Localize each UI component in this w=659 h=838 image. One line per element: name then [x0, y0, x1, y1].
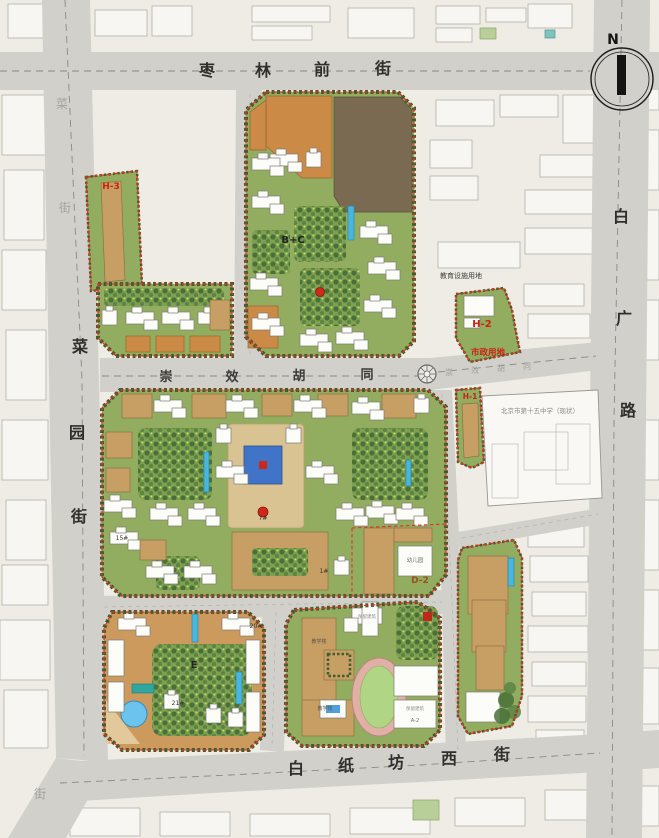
street-middle-faint-char: 同: [523, 362, 531, 371]
water-feature: [406, 460, 411, 486]
label-building-15: 15#: [116, 535, 129, 542]
street-top-char: 林: [255, 61, 271, 80]
street-left-faint-char: 街: [59, 201, 71, 215]
label-existing-school: 北京市第十五中学（现状）: [501, 406, 579, 415]
water-feature: [192, 614, 198, 642]
amenity-label-box: [132, 684, 154, 693]
road-caiyuan-street: [42, 0, 108, 762]
label-teaching-building-2: 教学楼: [317, 705, 332, 712]
street-middle-faint-char: 崇: [445, 368, 453, 377]
label-building-21: 21#: [172, 700, 185, 707]
roundabout: [418, 365, 436, 383]
street-top-char: 街: [374, 59, 391, 78]
label-education-land: 教育设施用地: [440, 271, 482, 280]
parcel-left-mid: [98, 284, 232, 356]
label-building-7: 7#: [259, 515, 268, 522]
water-feature: [508, 558, 514, 586]
site-plan-canvas: 枣 林 前 街 菜 街 菜 园 街 街 白 广 路 崇 效 胡 同 崇 效 胡 …: [0, 0, 659, 838]
street-left-char: 园: [69, 423, 85, 442]
label-bc: B+C: [281, 235, 304, 246]
street-bottom-char: 白: [288, 759, 304, 778]
label-h3: H-3: [102, 182, 120, 192]
street-left-faint-char: 菜: [56, 97, 68, 111]
street-bottom-char: 街: [493, 745, 510, 764]
street-left-faint-char: 街: [34, 787, 46, 801]
water-feature: [236, 672, 242, 704]
street-middle-char: 胡: [292, 368, 305, 384]
label-e: E: [191, 660, 198, 671]
north-label: N: [607, 32, 619, 48]
street-top-char: 前: [314, 60, 330, 79]
feature-marker: [423, 612, 432, 621]
label-d2: D-2: [411, 576, 429, 586]
street-bottom-char: 纸: [338, 756, 354, 775]
street-middle-char: 同: [360, 368, 373, 383]
water-feature: [348, 206, 354, 240]
label-teaching-building-1: 教学楼: [311, 638, 326, 645]
label-h1: H-1: [463, 392, 478, 401]
street-middle-char: 效: [225, 369, 239, 385]
label-building-20: 20#: [250, 623, 263, 630]
water-feature: [204, 452, 209, 492]
street-right-char: 白: [613, 207, 629, 226]
plaza-sculpture: [316, 288, 325, 297]
label-municipal-land: 市政用地: [471, 347, 506, 358]
north-needle: [617, 55, 626, 95]
parcel-southeast-strip: [458, 540, 522, 734]
label-retained-2: 保留建筑: [406, 705, 424, 712]
parcel-school: [286, 602, 440, 746]
label-retained-1: 保留建筑: [358, 613, 376, 620]
master-plan-map: 枣 林 前 街 菜 街 菜 园 街 街 白 广 路 崇 效 胡 同 崇 效 胡 …: [0, 0, 659, 838]
street-left-char: 菜: [71, 337, 88, 356]
parcel-e: [104, 612, 264, 750]
street-middle-faint-char: 效: [471, 365, 479, 375]
street-middle-char: 崇: [159, 369, 172, 385]
swimming-pool: [121, 701, 147, 727]
label-kindergarten: 幼儿园: [407, 556, 424, 564]
street-right-char: 广: [616, 309, 632, 328]
street-left-char: 街: [70, 507, 87, 526]
parcel-bc: [246, 92, 414, 356]
street-top-char: 枣: [198, 61, 216, 80]
label-a2: A-2: [411, 718, 419, 724]
street-middle-faint-char: 胡: [497, 363, 505, 373]
street-right-char: 路: [620, 401, 637, 420]
street-bottom-char: 坊: [388, 753, 404, 772]
label-building-1: 1#: [320, 568, 329, 575]
parcel-central: [102, 390, 446, 596]
street-bottom-char: 西: [441, 749, 457, 768]
label-h2: H-2: [472, 319, 492, 330]
road-chongxiao-hutong-west: [100, 358, 434, 392]
